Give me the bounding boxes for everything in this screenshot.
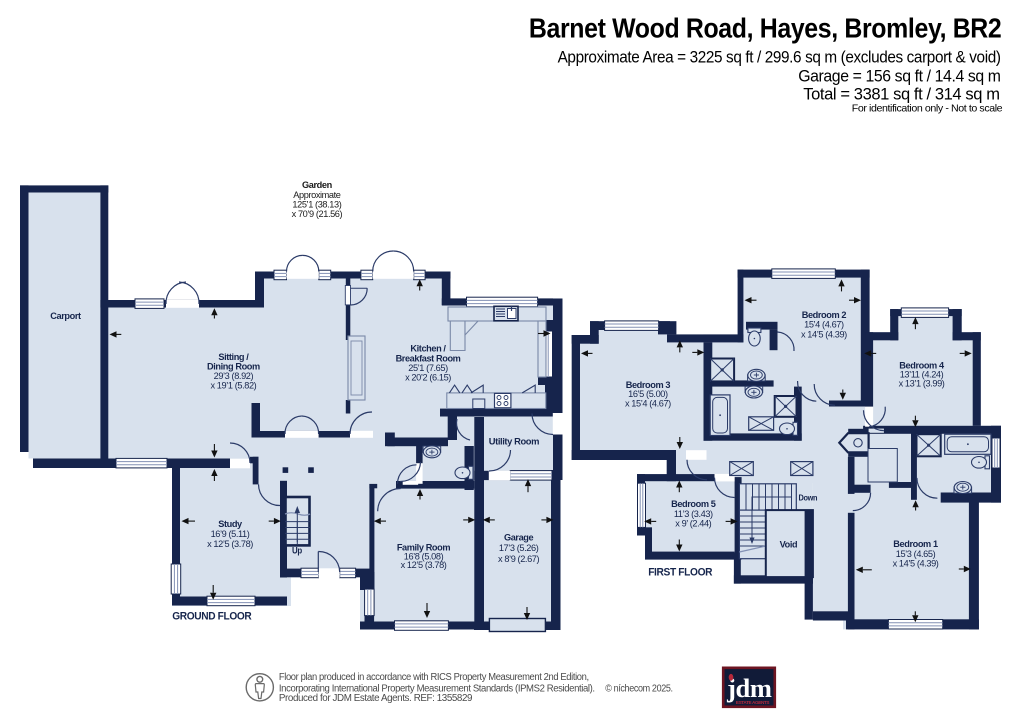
svg-text:11’3 (3.43): 11’3 (3.43) [674, 509, 713, 519]
svg-text:17’3 (5.26): 17’3 (5.26) [499, 543, 539, 553]
svg-text:Dining Room: Dining Room [207, 362, 260, 372]
svg-text:Floor plan produced in accorda: Floor plan produced in accordance with R… [279, 672, 589, 683]
svg-text:x 70’9 (21.56): x 70’9 (21.56) [292, 209, 343, 219]
svg-text:x 15’4 (4.67): x 15’4 (4.67) [625, 398, 671, 408]
svg-text:15’3 (4.65): 15’3 (4.65) [896, 549, 936, 559]
svg-text:x 9’ (2.44): x 9’ (2.44) [675, 519, 711, 529]
svg-text:Produced for JDM Estate Agents: Produced for JDM Estate Agents. REF: 135… [279, 693, 472, 704]
svg-text:16’9 (5.11): 16’9 (5.11) [211, 529, 250, 539]
svg-text:Sitting /: Sitting / [218, 352, 249, 362]
svg-text:x 19’1 (5.82): x 19’1 (5.82) [210, 381, 256, 391]
svg-text:25’1 (7.65): 25’1 (7.65) [408, 363, 448, 373]
svg-text:x 20’2 (6.15): x 20’2 (6.15) [405, 373, 451, 383]
svg-text:Total = 3381 sq ft / 314 sq m: Total = 3381 sq ft / 314 sq m [803, 86, 999, 104]
svg-text:Garage: Garage [504, 533, 534, 543]
svg-text:Bedroom 5: Bedroom 5 [671, 499, 716, 509]
svg-text:x 14’5 (4.39): x 14’5 (4.39) [893, 559, 939, 569]
svg-text:Void: Void [780, 539, 798, 550]
svg-text:x 13’1 (3.99): x 13’1 (3.99) [899, 379, 945, 389]
svg-text:Study: Study [218, 519, 243, 529]
svg-text:x 12’5 (3.78): x 12’5 (3.78) [401, 560, 447, 570]
svg-text:© níchecom 2025.: © níchecom 2025. [605, 683, 673, 694]
svg-text:Carport: Carport [50, 311, 81, 321]
svg-text:x 12’5 (3.78): x 12’5 (3.78) [207, 539, 253, 549]
svg-text:Bedroom 2: Bedroom 2 [802, 310, 847, 320]
svg-text:29’3 (8.92): 29’3 (8.92) [214, 371, 254, 381]
svg-text:Utility Room: Utility Room [489, 436, 539, 447]
svg-text:15’4 (4.67): 15’4 (4.67) [804, 320, 844, 330]
svg-text:GROUND FLOOR: GROUND FLOOR [172, 611, 251, 623]
svg-text:Garden: Garden [302, 180, 333, 190]
svg-text:ESTATE AGENTS: ESTATE AGENTS [736, 700, 770, 705]
svg-text:FIRST FLOOR: FIRST FLOOR [648, 567, 712, 579]
svg-text:Down: Down [799, 492, 818, 502]
svg-text:Approximate: Approximate [293, 190, 340, 200]
svg-text:Barnet Wood Road, Hayes, Broml: Barnet Wood Road, Hayes, Bromley, BR2 [529, 13, 1002, 44]
svg-text:For identification only - Not: For identification only - Not to scale [852, 104, 1003, 115]
svg-text:Bedroom 1: Bedroom 1 [893, 539, 938, 549]
svg-text:125’1 (38.13): 125’1 (38.13) [292, 200, 341, 210]
svg-text:Kitchen /: Kitchen / [410, 344, 446, 354]
svg-text:Approximate Area = 3225 sq ft: Approximate Area = 3225 sq ft / 299.6 sq… [558, 49, 1001, 67]
svg-text:Garage = 156 sq ft / 14.4 sq m: Garage = 156 sq ft / 14.4 sq m [798, 68, 1000, 86]
svg-text:x 8’9 (2.67): x 8’9 (2.67) [498, 554, 540, 564]
svg-text:Up: Up [292, 545, 303, 555]
svg-text:x 14’5 (4.39): x 14’5 (4.39) [801, 330, 847, 340]
svg-text:Breakfast Room: Breakfast Room [396, 353, 461, 363]
